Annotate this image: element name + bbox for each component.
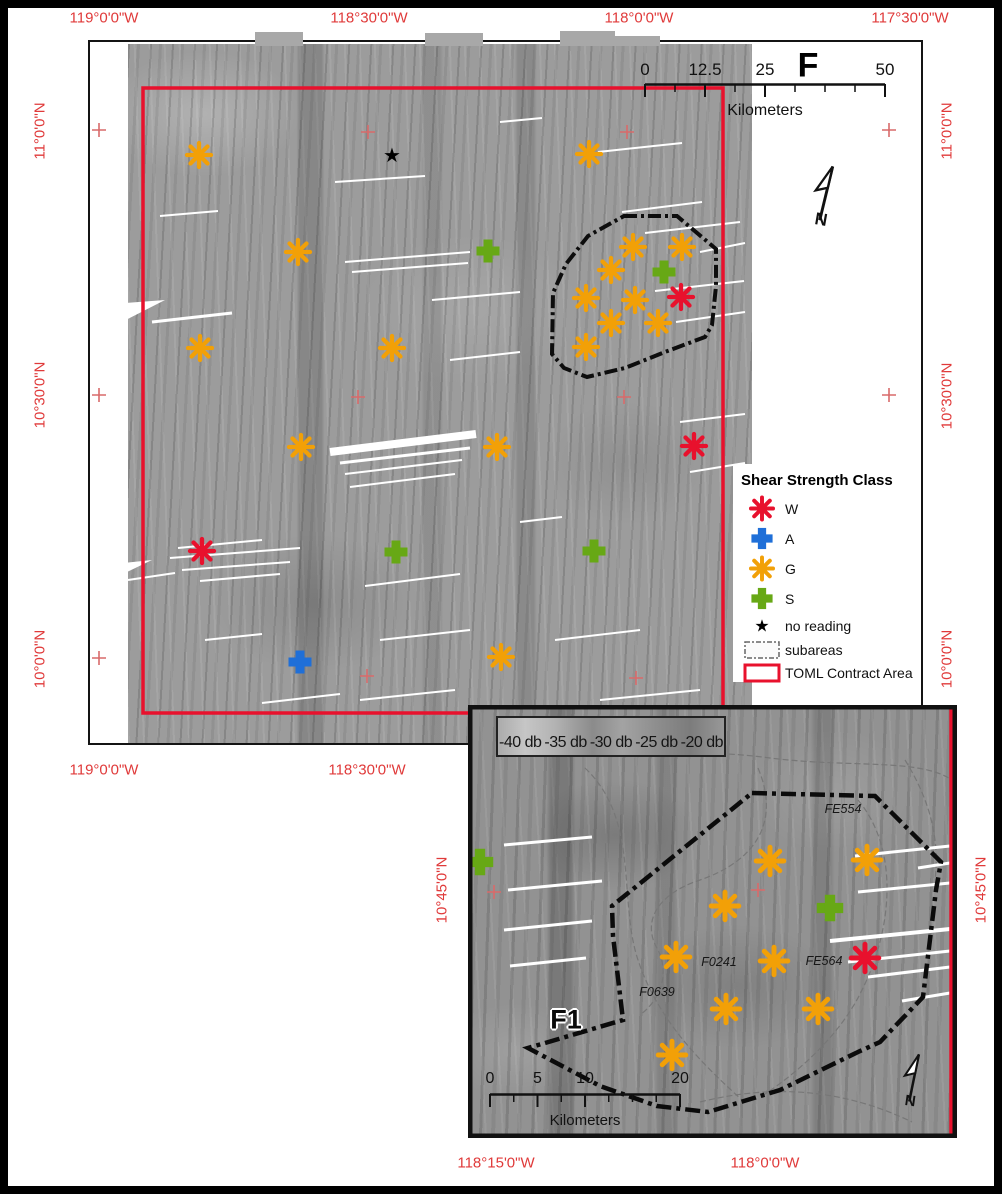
legend-symbol — [739, 525, 785, 552]
scalebar-tick-label: 5 — [533, 1070, 542, 1088]
marker-w — [851, 944, 879, 972]
marker-g — [662, 943, 690, 971]
inset-scalebar: 051020Kilometers — [490, 1070, 680, 1134]
legend-item: ★no reading — [739, 615, 921, 637]
marker-g — [711, 892, 739, 920]
legend-symbol — [739, 663, 785, 683]
marker-g — [760, 947, 788, 975]
inset-subarea-outlines — [560, 733, 952, 1122]
marker-a — [751, 528, 772, 549]
graticule-label: 118°30'0"W — [330, 10, 407, 27]
graticule-label: 118°15'0"W — [457, 1155, 534, 1172]
inset-label-f1: F1 — [550, 1005, 582, 1036]
graticule-label: 117°30'0"W — [871, 10, 948, 27]
sonar-backscatter-mosaic — [128, 44, 752, 743]
scalebar-tick-label: 10 — [576, 1070, 594, 1088]
inset-white-streaks — [504, 837, 950, 1001]
main-scalebar: 012.52550Kilometers — [645, 60, 885, 124]
db-scale-label: -35 db — [544, 734, 586, 752]
legend-item-label: G — [785, 561, 796, 577]
inset-graticule-crosses — [487, 883, 765, 899]
scalebar-tick-label: 0 — [640, 60, 649, 80]
scalebar-tick-label: 20 — [671, 1070, 689, 1088]
marker-no-reading: ★ — [754, 617, 769, 636]
scalebar-unit: Kilometers — [645, 102, 885, 120]
db-scale-label: -25 db — [635, 734, 677, 752]
legend-item: W — [739, 495, 921, 522]
backscatter-db-colorbar: -40 db-35 db-30 db-25 db-20 db — [496, 716, 726, 757]
marker-g — [804, 995, 832, 1023]
graticule-label: 10°30'0"N — [939, 363, 956, 430]
legend-item-label: subareas — [785, 642, 843, 658]
marker-g — [712, 995, 740, 1023]
graticule-label: 10°45'0"N — [973, 857, 990, 924]
marker-g — [658, 1041, 686, 1069]
graticule-label: 10°0'0"N — [939, 630, 956, 688]
legend-title: Shear Strength Class — [741, 472, 921, 489]
legend-symbol — [739, 555, 785, 582]
marker-s — [751, 588, 772, 609]
graticule-label: 10°30'0"N — [32, 362, 49, 429]
graticule-label: 11°0'0"N — [32, 102, 49, 159]
graticule-cross — [487, 885, 501, 899]
legend-item-label: W — [785, 501, 798, 517]
graticule-label: 10°0'0"N — [32, 630, 49, 688]
marker-g — [751, 557, 773, 579]
scalebar-unit: Kilometers — [490, 1112, 680, 1129]
graticule-label: 118°0'0"W — [731, 1155, 800, 1172]
db-scale-label: -20 db — [681, 734, 723, 752]
legend-item: subareas — [739, 640, 921, 660]
map-figure: N★ F Shear Strength Class WAGS★no readin… — [0, 0, 1002, 1194]
legend-item: G — [739, 555, 921, 582]
legend-item-label: no reading — [785, 618, 851, 634]
legend-item-label: A — [785, 531, 794, 547]
marker-g — [853, 846, 881, 874]
legend-symbol: ★ — [739, 615, 785, 637]
subarea-name-label: F0241 — [701, 955, 736, 969]
inset-subarea-boundary — [528, 793, 941, 1112]
legend-symbol — [739, 495, 785, 522]
legend-item-label: TOML Contract Area — [785, 665, 913, 681]
scalebar-tick-label: 25 — [756, 60, 775, 80]
scalebar-ticks — [488, 1093, 682, 1111]
graticule-label: 10°45'0"N — [434, 857, 451, 924]
marker-w — [751, 497, 773, 519]
legend-item: TOML Contract Area — [739, 663, 921, 683]
graticule-label: 119°0'0"W — [70, 10, 139, 27]
inset-map: N -40 db-35 db-30 db-25 db-20 db F1 FE55… — [468, 705, 957, 1138]
graticule-cross — [751, 883, 765, 897]
north-arrow: N — [900, 1053, 922, 1110]
db-scale-label: -40 db — [499, 734, 541, 752]
graticule-label: 119°0'0"W — [70, 762, 139, 779]
scalebar-tick-label: 12.5 — [688, 60, 721, 80]
graticule-label: 118°30'0"W — [328, 762, 405, 779]
graticule-label: 11°0'0"N — [939, 102, 956, 159]
legend-item: S — [739, 585, 921, 612]
svg-text:N: N — [904, 1092, 917, 1110]
scalebar-tick-label: 50 — [876, 60, 895, 80]
legend-symbol — [739, 640, 785, 660]
graticule-label: 118°0'0"W — [605, 10, 674, 27]
subarea-name-label: FE554 — [825, 802, 862, 816]
svg-text:★: ★ — [754, 617, 769, 636]
db-scale-label: -30 db — [590, 734, 632, 752]
subarea-name-label: FE564 — [806, 954, 843, 968]
scalebar-ticks — [643, 83, 887, 101]
subarea-name-label: F0639 — [639, 985, 674, 999]
legend-symbol — [739, 585, 785, 612]
scalebar-tick-label: 0 — [486, 1070, 495, 1088]
marker-s — [468, 849, 493, 875]
marker-s — [817, 895, 843, 921]
marker-g — [756, 847, 784, 875]
legend-item: A — [739, 525, 921, 552]
legend: Shear Strength Class WAGS★no readingsuba… — [733, 464, 921, 682]
legend-item-label: S — [785, 591, 794, 607]
